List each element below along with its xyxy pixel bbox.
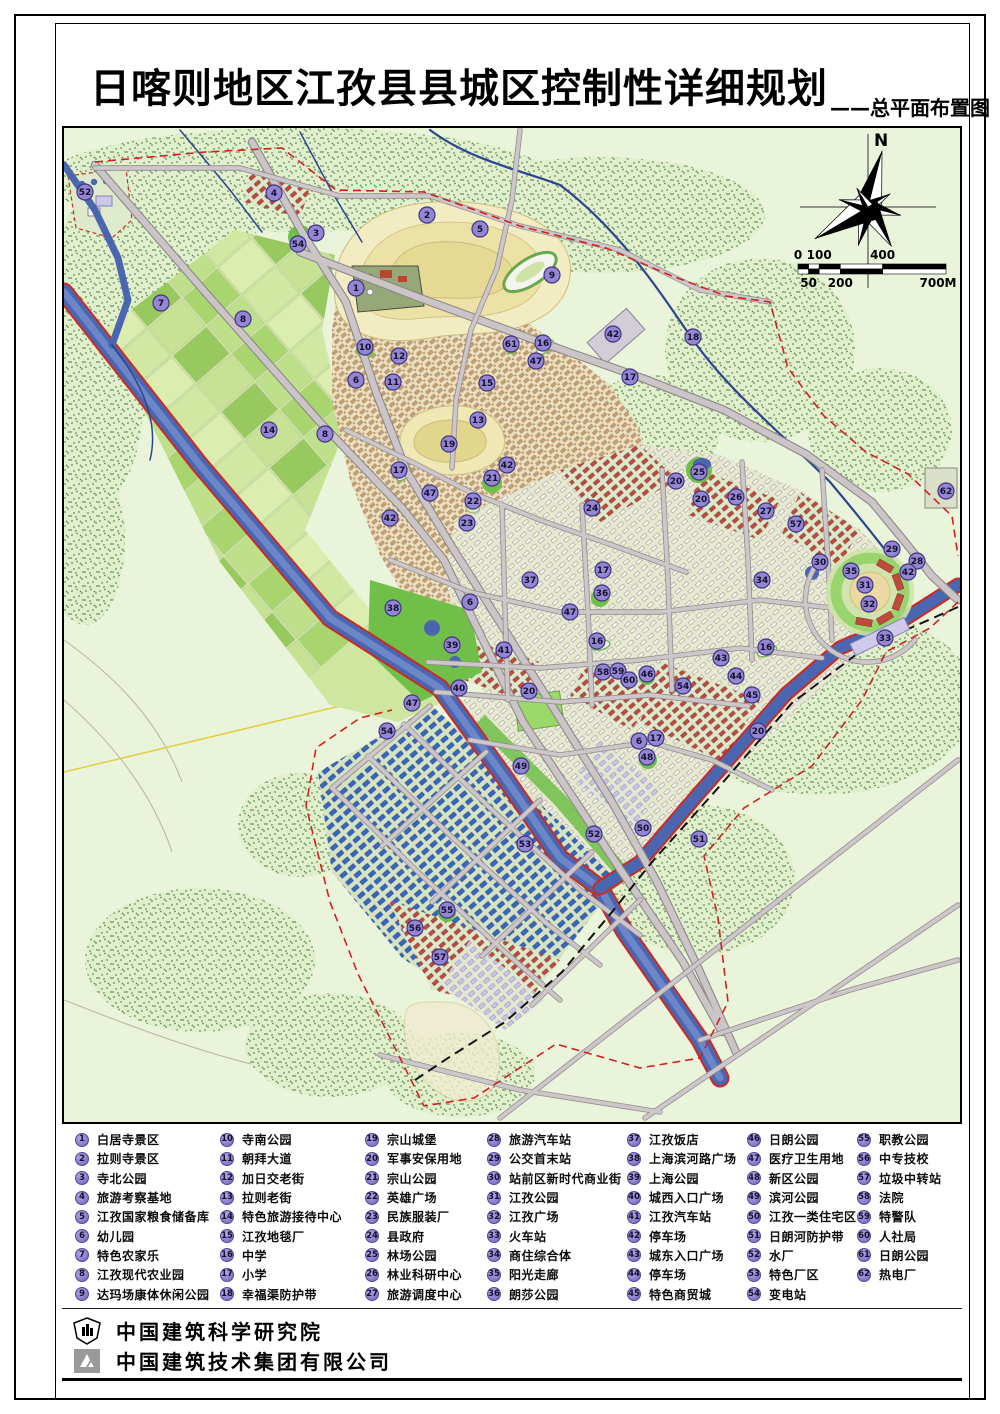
plan-sheet: 日喀则地区江孜县县城区控制性详细规划 ——总平面布置图 bbox=[0, 0, 1000, 1414]
sheet-outer-frame bbox=[14, 14, 986, 1400]
